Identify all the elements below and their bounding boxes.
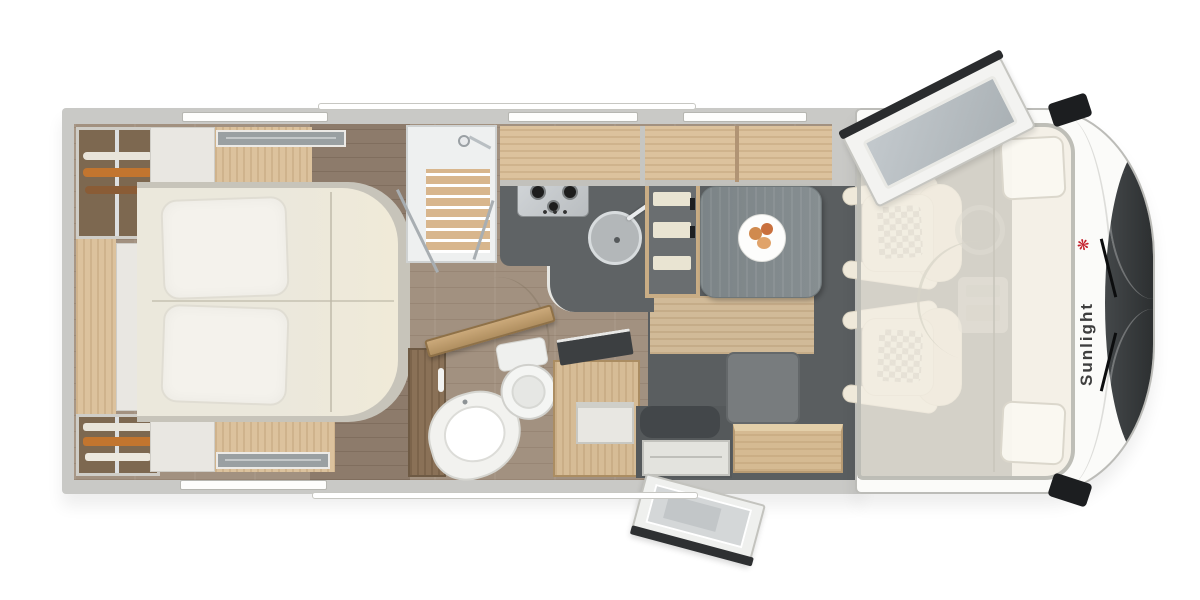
shower-cabin bbox=[406, 125, 497, 263]
mattress-seam-horizontal bbox=[152, 300, 394, 302]
nightstand-top bbox=[150, 127, 215, 189]
step-line bbox=[650, 456, 722, 458]
bed-pillow bbox=[999, 400, 1066, 465]
kitchen-counter-extension bbox=[547, 266, 654, 312]
burner bbox=[562, 184, 578, 200]
floorplan-image: ❋ Sunlight bbox=[0, 0, 1200, 600]
fridge-shelf bbox=[653, 222, 691, 238]
window-top-kitchen bbox=[508, 112, 638, 122]
fridge-hinge bbox=[690, 226, 695, 238]
wardrobe-shelves bbox=[76, 414, 160, 476]
food bbox=[757, 237, 771, 249]
rear-shelf bbox=[76, 239, 116, 414]
cabinet-divider bbox=[640, 126, 645, 186]
pillow-top bbox=[160, 196, 289, 300]
roof-vent-top bbox=[216, 130, 346, 147]
awning-rail-bottom bbox=[312, 492, 698, 499]
pillow-bottom bbox=[160, 304, 289, 406]
vanity-cabinet bbox=[553, 360, 640, 477]
clothes bbox=[83, 152, 153, 160]
round-sink bbox=[588, 211, 642, 265]
window-top-dinette bbox=[683, 112, 807, 122]
refrigerator bbox=[645, 170, 700, 298]
vanity-step bbox=[576, 402, 634, 444]
basin-faucet bbox=[462, 399, 468, 405]
roof-vent-bottom bbox=[216, 452, 330, 469]
washbasin-bowl bbox=[437, 399, 512, 470]
clothes-rail bbox=[115, 130, 119, 236]
folded-clothes bbox=[85, 453, 151, 461]
sideboard bbox=[733, 424, 843, 473]
folded-clothes bbox=[83, 437, 153, 446]
awning-rail-top bbox=[318, 103, 696, 110]
windshield bbox=[1105, 142, 1155, 464]
window-top-bedroom bbox=[182, 112, 328, 122]
dinette-wood-floor bbox=[650, 296, 814, 354]
bed-crease bbox=[901, 225, 1052, 376]
brand-logo: Sunlight bbox=[1077, 254, 1097, 386]
stove-knobs bbox=[542, 210, 568, 214]
clothes bbox=[83, 168, 153, 177]
burner bbox=[530, 184, 546, 200]
cabinet-divider bbox=[735, 126, 739, 182]
cabinet-handle bbox=[438, 368, 444, 392]
shower-hose bbox=[469, 136, 492, 150]
bed-pillow bbox=[999, 135, 1066, 200]
food bbox=[761, 223, 773, 235]
entry-step bbox=[642, 440, 730, 476]
fridge-hinge bbox=[690, 198, 695, 210]
bench-seat bbox=[726, 352, 800, 424]
fridge-shelf bbox=[653, 192, 691, 206]
sink-drain bbox=[614, 237, 620, 243]
folded-clothes bbox=[83, 423, 153, 431]
overhead-cabinets-kitchen bbox=[500, 126, 640, 186]
entry-arch bbox=[640, 406, 720, 438]
plate-of-food bbox=[738, 214, 786, 262]
window-bottom-bedroom bbox=[180, 480, 327, 490]
mattress-seam-vertical bbox=[330, 192, 332, 412]
fridge-shelf bbox=[653, 256, 691, 270]
